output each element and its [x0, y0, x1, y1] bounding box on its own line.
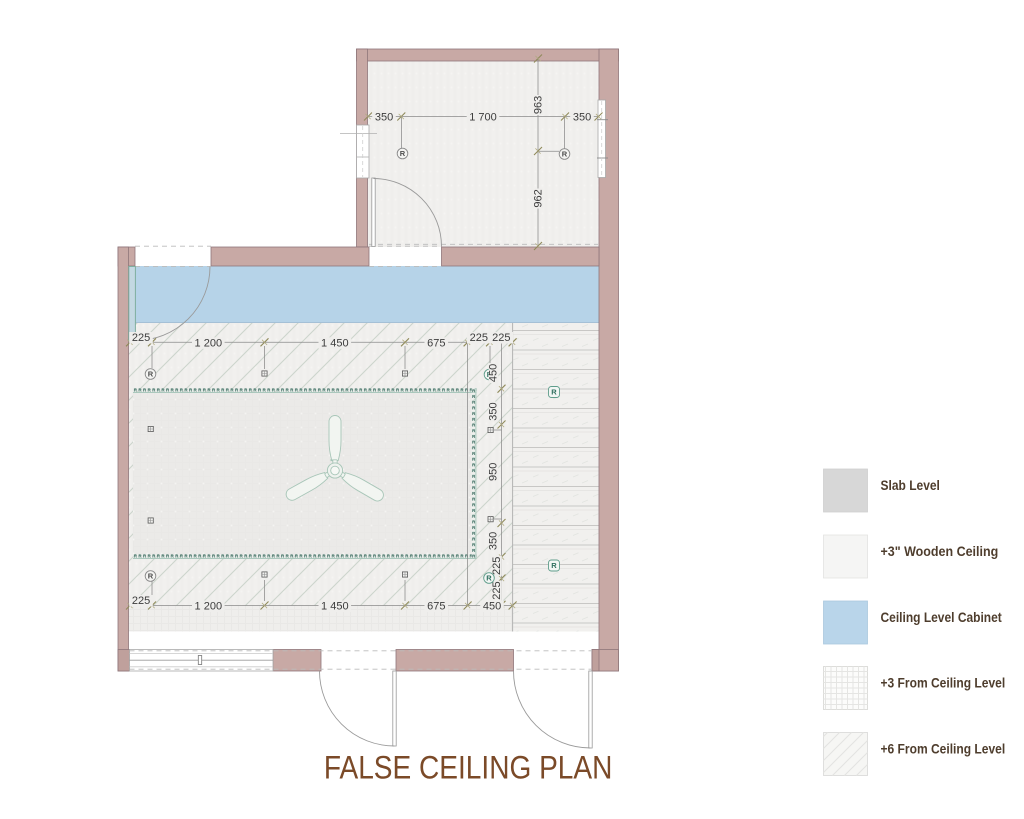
svg-text:1 450: 1 450: [321, 337, 349, 349]
svg-text:Slab Level: Slab Level: [881, 478, 940, 493]
svg-text:Ceiling Level Cabinet: Ceiling Level Cabinet: [881, 610, 1003, 625]
svg-text:225: 225: [132, 332, 150, 344]
svg-text:+6 From Ceiling Level: +6 From Ceiling Level: [881, 742, 1006, 757]
svg-text:350: 350: [488, 532, 500, 550]
svg-text:+3" Wooden Ceiling: +3" Wooden Ceiling: [881, 544, 999, 559]
svg-text:350: 350: [573, 112, 591, 124]
svg-text:225: 225: [491, 581, 503, 599]
svg-text:950: 950: [488, 463, 500, 481]
svg-text:962: 962: [533, 189, 545, 207]
svg-text:225: 225: [491, 557, 503, 575]
svg-text:+3 From Ceiling Level: +3 From Ceiling Level: [881, 676, 1006, 691]
svg-text:1 200: 1 200: [195, 601, 223, 613]
svg-text:963: 963: [533, 96, 545, 114]
svg-text:675: 675: [427, 337, 445, 349]
svg-text:225: 225: [132, 595, 150, 607]
svg-text:1 200: 1 200: [195, 337, 223, 349]
svg-text:1 700: 1 700: [469, 112, 497, 124]
svg-text:450: 450: [483, 601, 501, 613]
svg-text:225: 225: [470, 332, 488, 344]
svg-text:675: 675: [427, 601, 445, 613]
svg-text:450: 450: [488, 364, 500, 382]
svg-text:350: 350: [488, 402, 500, 420]
svg-text:225: 225: [492, 332, 510, 344]
svg-text:350: 350: [375, 112, 393, 124]
svg-text:FALSE CEILING PLAN: FALSE CEILING PLAN: [324, 750, 613, 786]
svg-text:1 450: 1 450: [321, 601, 349, 613]
